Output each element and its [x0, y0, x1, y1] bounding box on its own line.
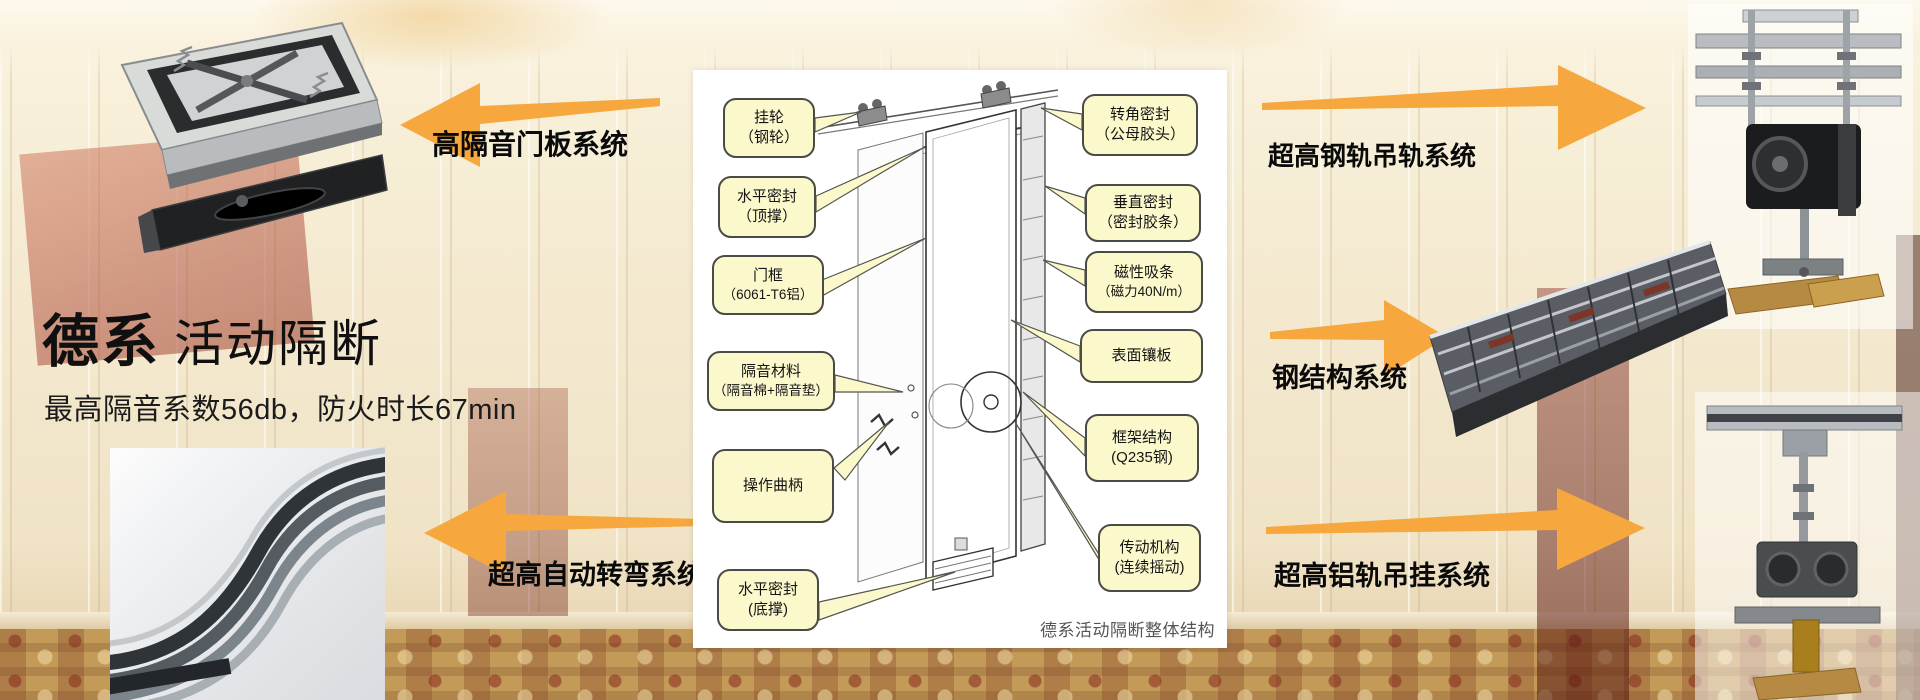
- callout-text-line1: 隔音材料: [741, 362, 801, 382]
- callout-bottom-seal: 水平密封 (底撑): [717, 569, 819, 631]
- callout-hanging-wheel: 挂轮 （钢轮）: [723, 98, 815, 158]
- callout-text-line2: (Q235钢): [1111, 448, 1173, 468]
- feature-label-auto-turning-system: 超高自动转弯系统: [488, 553, 704, 592]
- callout-text-line2: (连续摇动): [1115, 558, 1185, 578]
- callout-text-line1: 挂轮: [754, 108, 784, 128]
- headline: 德系 活动隔断: [42, 296, 382, 378]
- callout-top-seal: 水平密封 （顶撑）: [718, 176, 816, 238]
- callout-text-line2: （钢轮）: [739, 128, 799, 148]
- photo-aluminum-rail-system: [1695, 392, 1920, 700]
- page: 德系 活动隔断 最高隔音系数56db，防火时长67min: [0, 0, 1920, 700]
- product-title: 活动隔断: [174, 304, 382, 376]
- subtitle: 最高隔音系数56db，防火时长67min: [44, 386, 517, 428]
- photo-steel-structure: [1428, 232, 1728, 472]
- callout-corner-seal: 转角密封 （公母胶头）: [1082, 94, 1198, 156]
- callout-operating-crank: 操作曲柄: [712, 449, 834, 523]
- callout-text-line2: （公母胶头）: [1095, 125, 1185, 145]
- callout-text-line1: 水平密封: [737, 187, 797, 207]
- feature-label-door-panel-system: 高隔音门板系统: [432, 123, 628, 163]
- callout-surface-panel: 表面镶板: [1080, 329, 1203, 383]
- callout-text-line1: 传动机构: [1119, 538, 1179, 558]
- callout-text-line2: （磁力40N/m）: [1097, 283, 1191, 301]
- callout-text-line1: 框架结构: [1112, 428, 1172, 448]
- callout-vertical-seal: 垂直密封 （密封胶条）: [1085, 184, 1201, 242]
- callout-text-line2: （隔音棉+隔音垫）: [713, 382, 829, 400]
- callout-text-line1: 操作曲柄: [743, 476, 803, 496]
- diagram-panel: 挂轮 （钢轮） 水平密封 （顶撑） 门框 （6061-T6铝） 隔音材料 （隔音…: [693, 70, 1227, 648]
- callout-text-line2: （密封胶条）: [1098, 213, 1188, 233]
- feature-label-steel-rail-system: 超高钢轨吊轨系统: [1268, 136, 1476, 173]
- feature-label-aluminum-rail-system: 超高铝轨吊挂系统: [1274, 554, 1490, 593]
- callout-text-line1: 水平密封: [738, 580, 798, 600]
- callout-door-frame: 门框 （6061-T6铝）: [712, 255, 824, 315]
- callout-text-line1: 垂直密封: [1113, 193, 1173, 213]
- callout-text-line2: （顶撑）: [737, 207, 797, 227]
- callout-sound-insulation: 隔音材料 （隔音棉+隔音垫）: [707, 351, 835, 411]
- callout-text-line1: 表面镶板: [1111, 346, 1171, 366]
- brand-title: 德系: [42, 296, 160, 378]
- callout-text-line2: (底撑): [748, 600, 788, 620]
- feature-label-steel-structure-system: 钢结构系统: [1272, 356, 1407, 395]
- photo-door-panel-mechanism: [92, 5, 392, 305]
- callout-text-line1: 门框: [753, 266, 783, 286]
- callout-text-line1: 磁性吸条: [1114, 263, 1174, 283]
- callout-magnetic-strip: 磁性吸条 （磁力40N/m）: [1085, 251, 1203, 313]
- diagram-caption: 德系活动隔断整体结构: [1040, 616, 1215, 641]
- callout-text-line1: 转角密封: [1110, 105, 1170, 125]
- callout-frame-structure: 框架结构 (Q235钢): [1085, 414, 1199, 482]
- callout-transmission: 传动机构 (连续摇动): [1098, 524, 1201, 592]
- callout-text-line2: （6061-T6铝）: [723, 286, 814, 304]
- photo-curved-track: [110, 438, 385, 693]
